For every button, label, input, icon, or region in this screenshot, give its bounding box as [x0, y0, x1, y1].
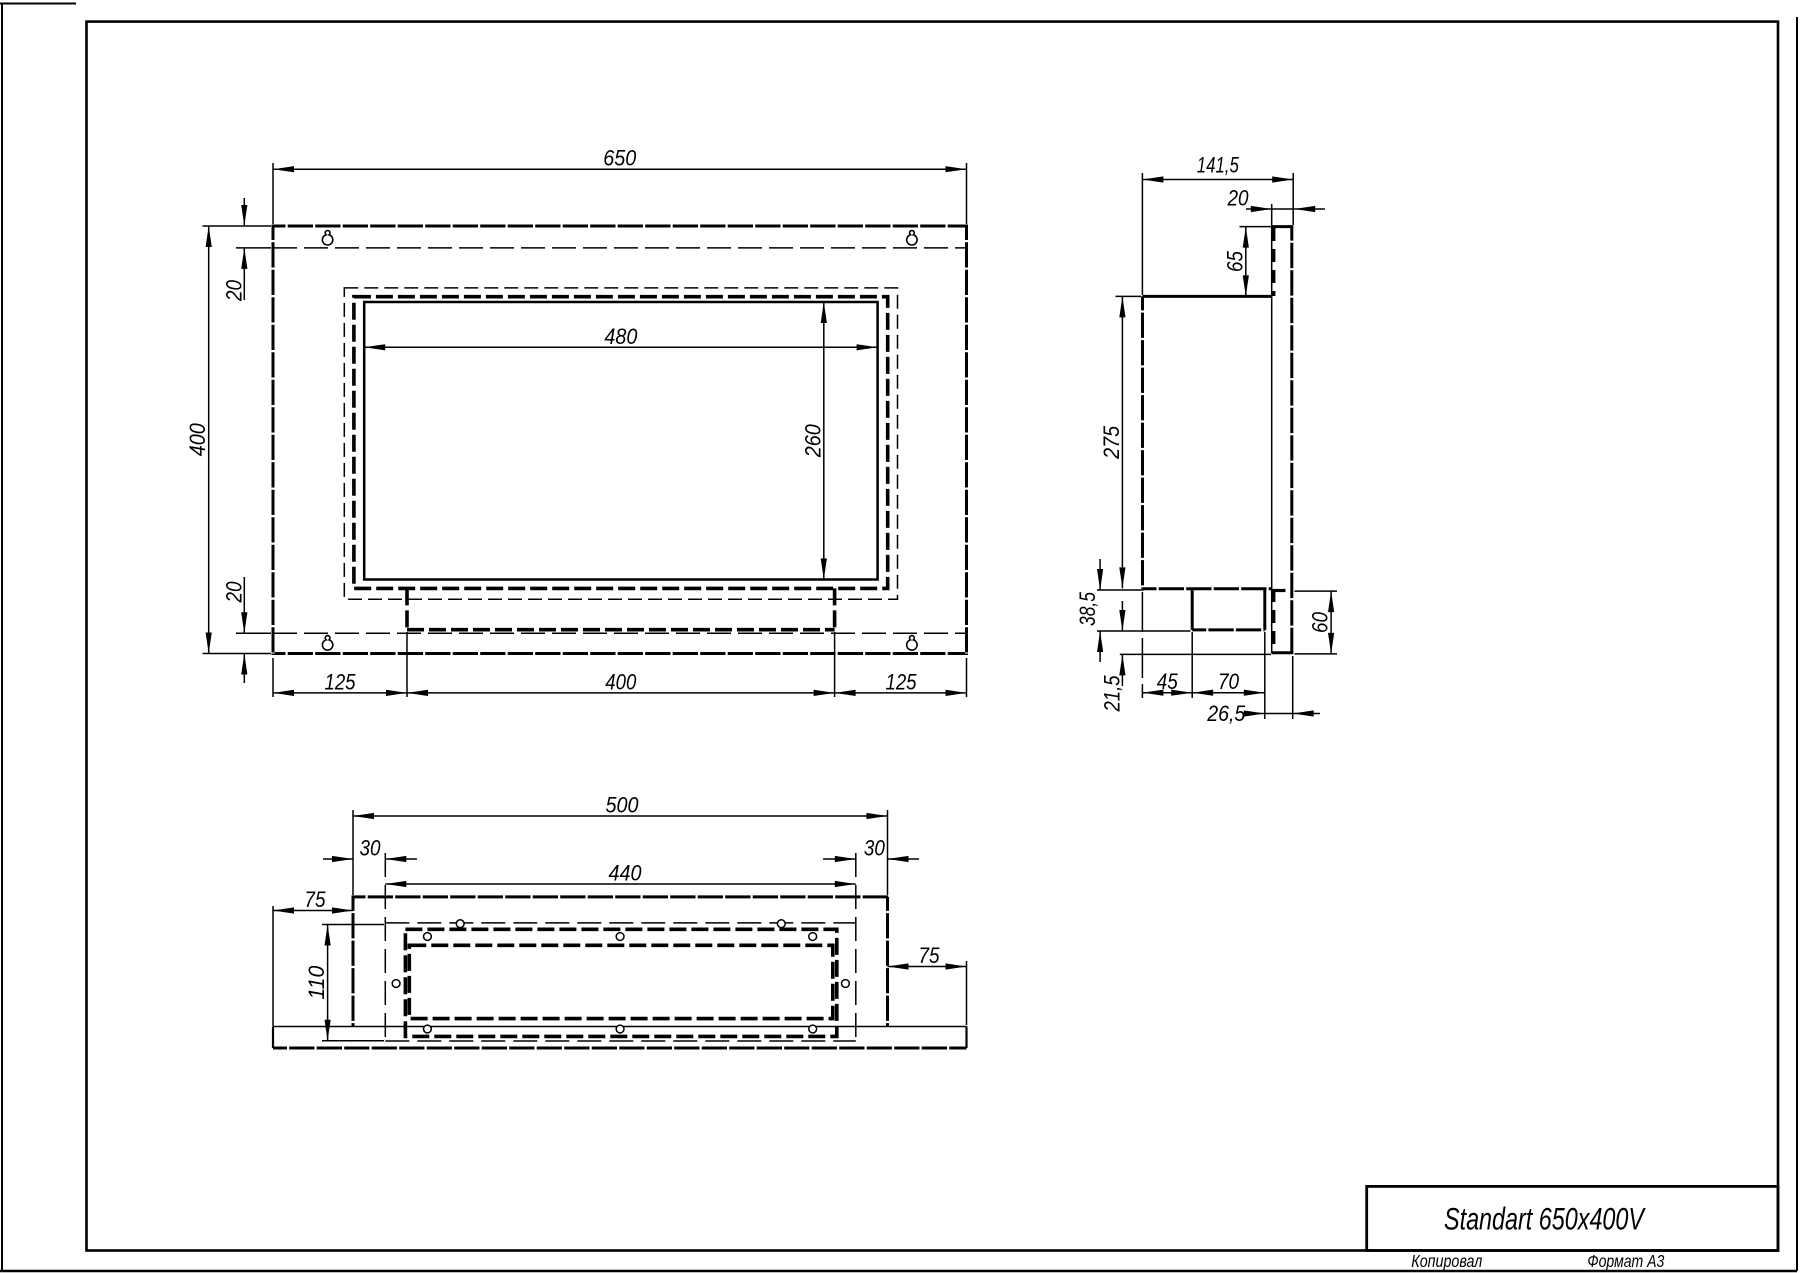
svg-text:650: 650 [603, 146, 637, 171]
svg-text:30: 30 [360, 836, 382, 861]
svg-text:26,5: 26,5 [1206, 701, 1246, 726]
svg-text:30: 30 [864, 836, 886, 861]
svg-text:21,5: 21,5 [1099, 675, 1124, 712]
svg-text:Standart 650x400V: Standart 650x400V [1444, 1201, 1646, 1237]
svg-text:38,5: 38,5 [1075, 591, 1100, 626]
svg-text:20: 20 [221, 581, 246, 604]
svg-text:125: 125 [325, 669, 357, 694]
svg-text:70: 70 [1218, 669, 1240, 694]
svg-text:75: 75 [919, 943, 941, 968]
svg-text:440: 440 [609, 861, 643, 886]
svg-text:60: 60 [1308, 611, 1333, 633]
svg-text:260: 260 [800, 424, 825, 459]
svg-text:Формат А3: Формат А3 [1587, 1251, 1664, 1271]
svg-text:110: 110 [304, 965, 329, 1000]
svg-text:Копировал: Копировал [1411, 1251, 1482, 1271]
svg-text:400: 400 [185, 423, 210, 457]
svg-text:500: 500 [606, 793, 640, 818]
svg-text:400: 400 [605, 669, 637, 694]
svg-text:275: 275 [1099, 425, 1124, 460]
svg-text:125: 125 [886, 669, 918, 694]
svg-text:480: 480 [604, 324, 638, 349]
svg-text:141,5: 141,5 [1197, 153, 1240, 178]
svg-text:65: 65 [1222, 250, 1247, 272]
svg-text:20: 20 [1227, 186, 1250, 211]
svg-text:75: 75 [305, 887, 327, 912]
svg-text:20: 20 [221, 279, 246, 302]
svg-text:45: 45 [1157, 669, 1179, 694]
